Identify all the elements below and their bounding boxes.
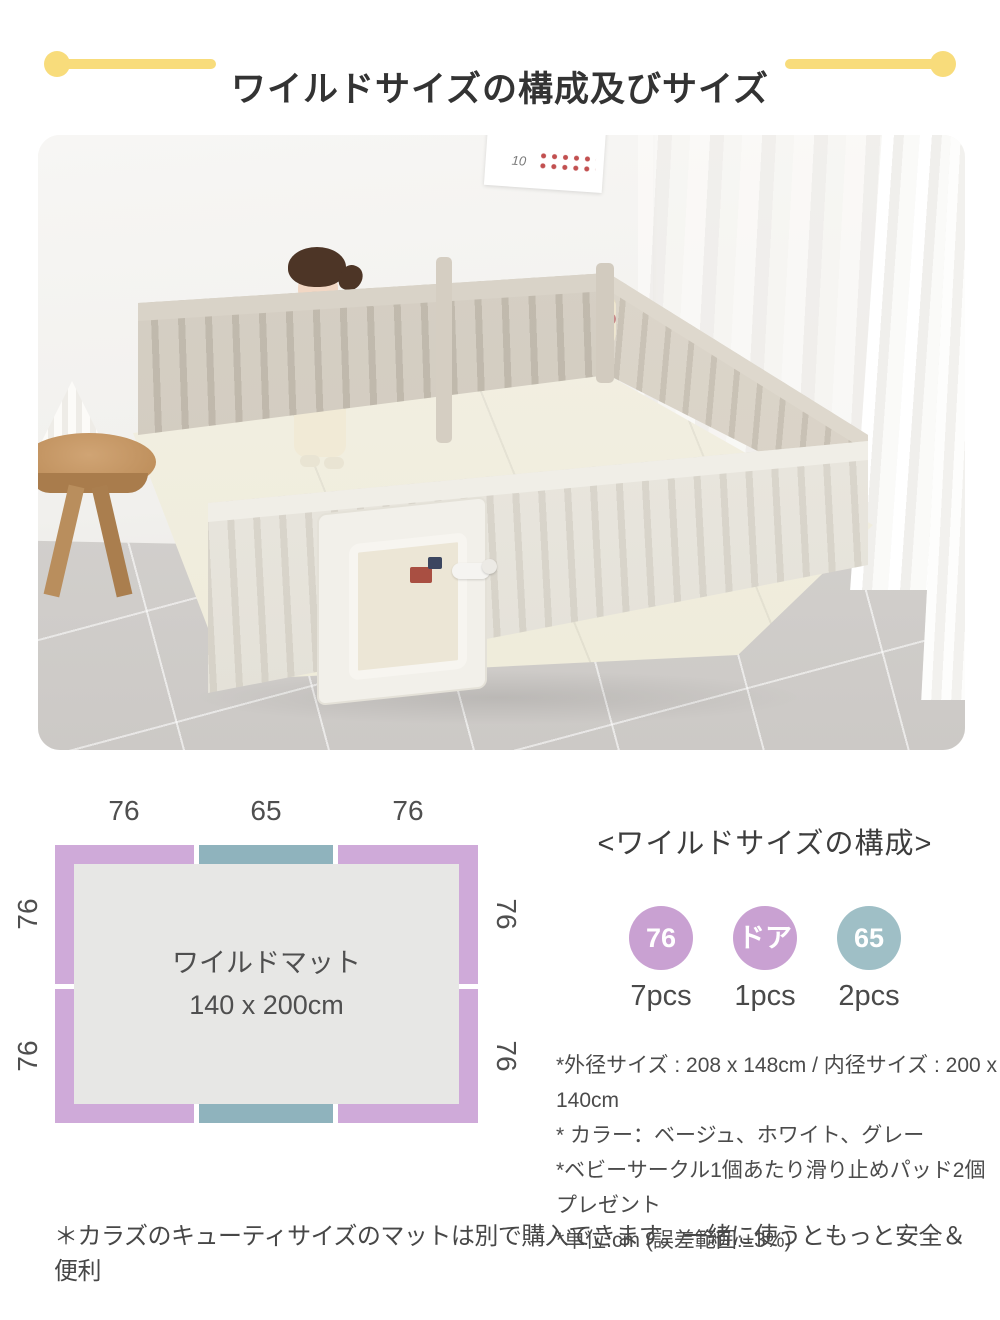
product-photo: 10: [38, 135, 965, 750]
panel-76-right-upper: [459, 845, 478, 984]
playpen-door-knob: [482, 559, 497, 574]
panel-door-count: 1pcs: [733, 980, 797, 1013]
toy-block: [410, 567, 432, 583]
panel-76-badge: 76: [629, 906, 693, 970]
mat-area: ワイルドマット 140 x 200cm: [74, 864, 459, 1104]
child-shoe: [300, 455, 320, 467]
mat-label-size: 140 x 200cm: [189, 984, 344, 1026]
dim-label-right-upper: 76: [486, 892, 526, 936]
composition-item-65: 65 2pcs: [837, 906, 901, 1013]
playpen-fence-post: [436, 257, 452, 443]
header-accent-bar-right: [785, 59, 943, 69]
composition-item-door: ドア 1pcs: [733, 906, 797, 1013]
dim-label-top-right: 76: [368, 795, 448, 827]
dim-label-left-lower: 76: [8, 1034, 48, 1078]
panel-76-count: 7pcs: [629, 980, 693, 1013]
playpen-corner-post: [596, 263, 614, 383]
toy-block: [428, 557, 442, 569]
composition-heading: <ワイルドサイズの構成>: [530, 820, 1000, 862]
calendar-dots: [537, 151, 596, 175]
note-outer-size: *外径サイズ : 208 x 148cm / 内径サイズ : 200 x 140…: [556, 1048, 1000, 1118]
note-gift: *ベビーサークル1個あたり滑り止めパッド2個プレゼント: [556, 1153, 1000, 1223]
size-diagram: 76 65 76 76 76 76 76 ワイルドマット 140 x 200cm: [0, 795, 540, 1190]
child-hair: [288, 247, 346, 287]
panel-76-top-left: [55, 845, 194, 864]
panel-76-top-right: [338, 845, 478, 864]
dim-label-top-left: 76: [84, 795, 164, 827]
panel-65-top: [199, 845, 333, 864]
note-color: * カラー：ベージュ、ホワイト、グレー: [556, 1118, 1000, 1153]
playpen-door-window: [349, 532, 467, 680]
dim-label-top-center: 65: [226, 795, 306, 827]
header-accent-dot-right: [930, 51, 956, 77]
panel-65-bottom: [199, 1104, 333, 1123]
dim-label-right-lower: 76: [486, 1034, 526, 1078]
composition-item-76: 76 7pcs: [629, 906, 693, 1013]
child-shoe: [324, 457, 344, 469]
panel-65-count: 2pcs: [837, 980, 901, 1013]
playpen-door: [317, 496, 487, 706]
panel-76-left-upper: [55, 845, 74, 984]
product-info-page: ワイルドサイズの構成及びサイズ 10: [0, 0, 1000, 1320]
panel-76-bottom-left: [55, 1104, 194, 1123]
panel-76-left-lower: [55, 989, 74, 1123]
calendar-number: 10: [511, 153, 526, 169]
panel-76-right-lower: [459, 989, 478, 1123]
panel-door-badge: ドア: [733, 906, 797, 970]
mat-label-name: ワイルドマット: [172, 942, 361, 984]
panel-65-badge: 65: [837, 906, 901, 970]
playpen-layout-frame: ワイルドマット 140 x 200cm: [55, 845, 478, 1123]
photo-wall-calendar: 10: [484, 135, 606, 193]
page-title: ワイルドサイズの構成及びサイズ: [0, 61, 1000, 112]
panel-76-bottom-right: [338, 1104, 478, 1123]
dim-label-left-upper: 76: [8, 892, 48, 936]
composition-items: 76 7pcs ドア 1pcs 65 2pcs: [530, 906, 1000, 1013]
footer-note: ＊カラズのキューティサイズのマットは別で購入できます。一緒に使うともっと安全＆便…: [54, 1216, 974, 1286]
